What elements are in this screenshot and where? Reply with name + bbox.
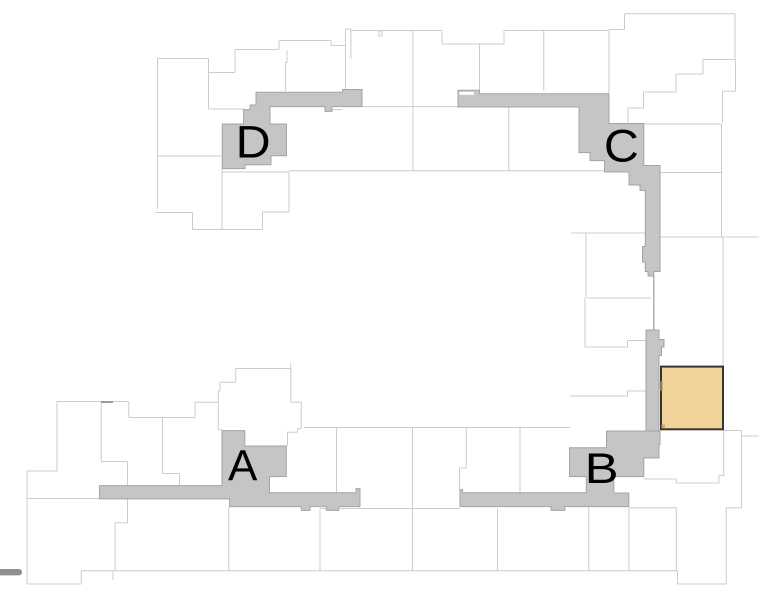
svg-text:D: D xyxy=(236,117,271,168)
svg-text:A: A xyxy=(228,441,258,490)
svg-text:C: C xyxy=(604,120,639,171)
svg-text:B: B xyxy=(585,445,619,493)
